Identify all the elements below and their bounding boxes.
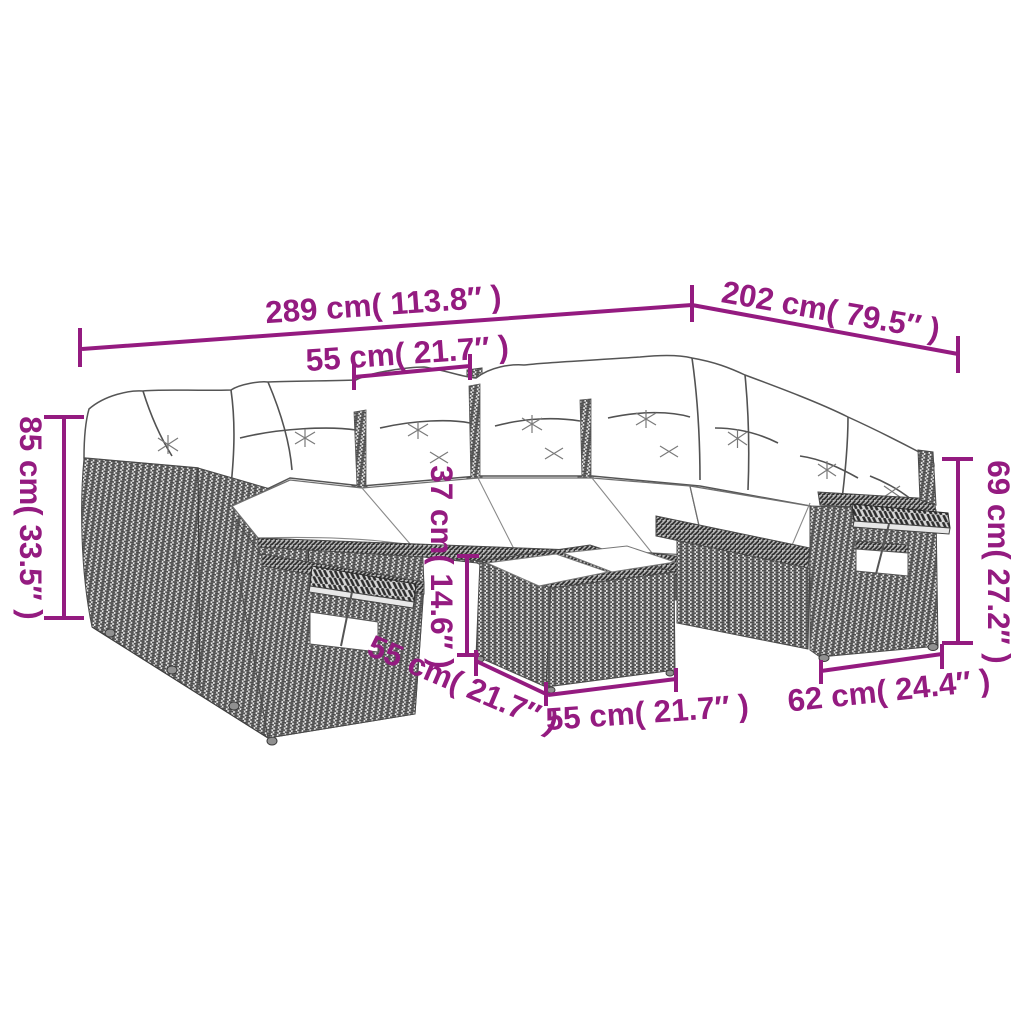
svg-text:37 cm( 14.6″ ): 37 cm( 14.6″ ) bbox=[424, 465, 459, 669]
svg-text:69 cm( 27.2″ ): 69 cm( 27.2″ ) bbox=[981, 460, 1016, 664]
svg-text:85 cm( 33.5″ ): 85 cm( 33.5″ ) bbox=[13, 416, 48, 620]
